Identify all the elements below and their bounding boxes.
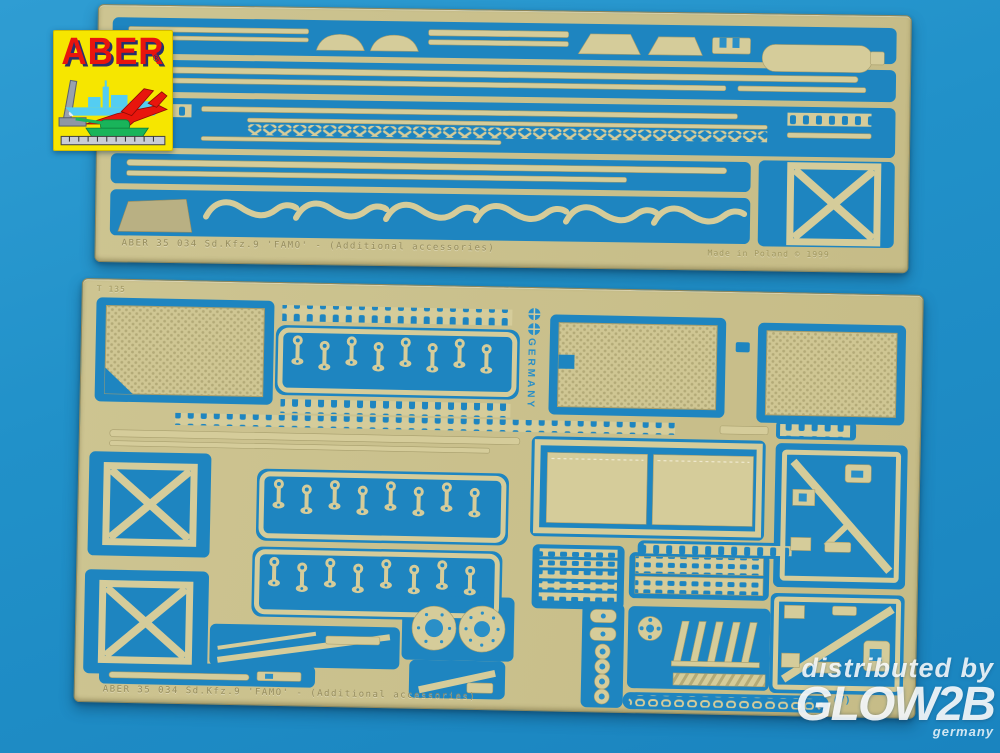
brand-name: ABER (61, 30, 164, 72)
bottom-fret-graphic (75, 279, 923, 718)
aber-logo: ABER ® (53, 30, 173, 151)
sheet-mounting-hole (736, 342, 750, 352)
top-fret-maker-mark: Made in Poland © 1999 (708, 249, 830, 260)
bottom-fret-corner-mark: T 135 (97, 284, 126, 294)
bottom-etched-sheet: T 135 GERMANY (7) ABER 35 034 Sd.Kfz.9 '… (73, 278, 923, 719)
product-photo: { "scene": { "background_color": "#2191c… (0, 0, 1000, 753)
logo-brand-text: ABER ® (61, 33, 164, 72)
ruler-icon (61, 136, 165, 144)
watermark-country: germany (795, 724, 994, 739)
bottom-fret-circle-mark: (7) (833, 695, 851, 706)
mesh-grille-panel-center (558, 323, 718, 410)
cross-braced-panel-lower (97, 579, 194, 665)
registered-mark: ® (153, 39, 161, 78)
top-fret-graphic (95, 5, 910, 272)
mesh-grille-panel-right (765, 331, 897, 418)
slotted-strip-stack (539, 548, 618, 602)
mesh-grille-panel-left (105, 305, 265, 396)
bottom-fret-germany-mark: GERMANY (524, 338, 537, 414)
cross-braced-panel-upper (102, 461, 199, 547)
logo-artwork (57, 70, 169, 151)
top-etched-sheet: ABER 35 034 Sd.Kfz.9 'FAMO' - (Additiona… (94, 4, 912, 273)
grommet-parts (528, 308, 541, 335)
